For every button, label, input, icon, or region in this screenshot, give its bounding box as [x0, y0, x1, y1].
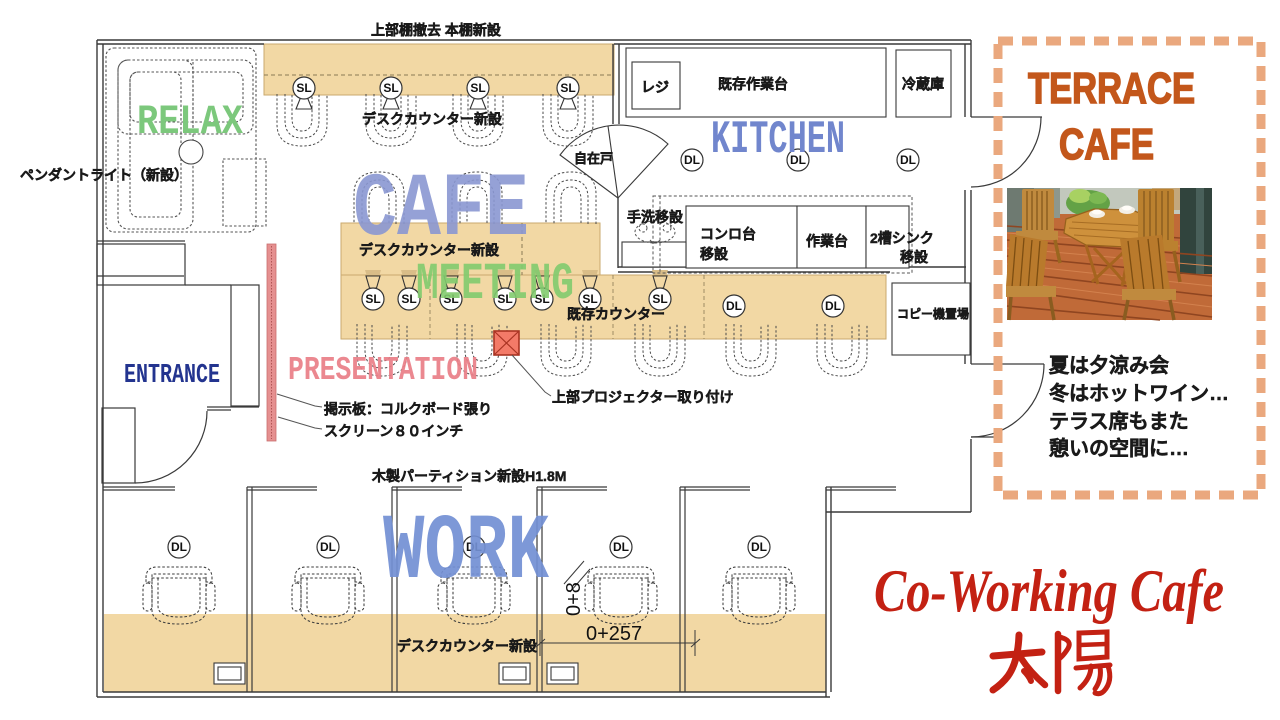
- svg-text:DL: DL: [726, 299, 742, 313]
- svg-text:デスクカウンター新設: デスクカウンター新設: [359, 242, 500, 258]
- svg-text:コンロ台: コンロ台: [700, 226, 756, 242]
- svg-text:自在戸: 自在戸: [574, 151, 613, 166]
- svg-text:PRESENTATION: PRESENTATION: [288, 352, 478, 389]
- svg-text:SL: SL: [470, 81, 485, 95]
- svg-text:KITCHEN: KITCHEN: [711, 114, 845, 166]
- svg-text:Co-Working Cafe: Co-Working Cafe: [874, 558, 1224, 624]
- svg-text:テラス席もまた: テラス席もまた: [1049, 409, 1189, 433]
- svg-text:木製パーティション新設H1.8M: 木製パーティション新設H1.8M: [371, 468, 566, 484]
- svg-text:SL: SL: [401, 292, 416, 306]
- svg-text:上部プロジェクター取り付け: 上部プロジェクター取り付け: [552, 389, 733, 405]
- svg-text:冬はホットワイン…: 冬はホットワイン…: [1049, 381, 1229, 405]
- svg-text:手洗移設: 手洗移設: [627, 209, 684, 225]
- svg-text:ペンダントライト（新設）: ペンダントライト（新設）: [20, 167, 188, 183]
- svg-text:掲示板：コルクボード張り: 掲示板：コルクボード張り: [324, 401, 492, 417]
- svg-text:DL: DL: [684, 153, 700, 167]
- svg-text:移設: 移設: [900, 249, 929, 265]
- svg-text:DL: DL: [751, 540, 767, 554]
- svg-text:移設: 移設: [700, 246, 729, 262]
- svg-text:DL: DL: [171, 540, 187, 554]
- svg-text:DL: DL: [613, 540, 629, 554]
- svg-text:SL: SL: [582, 292, 597, 306]
- svg-text:デスクカウンター新設: デスクカウンター新設: [362, 111, 503, 127]
- svg-text:SL: SL: [365, 292, 380, 306]
- svg-text:憩いの空間に…: 憩いの空間に…: [1049, 436, 1189, 460]
- svg-text:SL: SL: [560, 81, 575, 95]
- svg-text:スクリーン８０インチ: スクリーン８０インチ: [324, 423, 463, 439]
- svg-text:コピー機置場: コピー機置場: [897, 306, 969, 321]
- svg-text:MEETING: MEETING: [416, 255, 574, 314]
- svg-text:上部棚撤去 本棚新設: 上部棚撤去 本棚新設: [371, 22, 502, 38]
- svg-text:レジ: レジ: [641, 79, 669, 95]
- svg-text:SL: SL: [296, 81, 311, 95]
- svg-text:既存カウンター: 既存カウンター: [567, 306, 665, 322]
- svg-text:夏は夕涼み会: 夏は夕涼み会: [1049, 353, 1169, 377]
- svg-text:ENTRANCE: ENTRANCE: [124, 361, 220, 391]
- svg-text:WORK: WORK: [383, 500, 549, 605]
- svg-text:RELAX: RELAX: [137, 98, 244, 146]
- svg-text:0+8: 0+8: [563, 582, 585, 616]
- svg-text:既存作業台: 既存作業台: [718, 76, 788, 92]
- svg-text:SL: SL: [383, 81, 398, 95]
- svg-text:0+257: 0+257: [586, 623, 642, 645]
- svg-text:SL: SL: [652, 292, 667, 306]
- svg-text:2槽シンク: 2槽シンク: [870, 230, 934, 246]
- svg-text:DL: DL: [825, 299, 841, 313]
- svg-text:CAFE: CAFE: [1059, 120, 1154, 169]
- svg-text:デスクカウンター新設: デスクカウンター新設: [397, 638, 538, 654]
- svg-text:冷蔵庫: 冷蔵庫: [902, 76, 944, 92]
- svg-text:TERRACE: TERRACE: [1028, 64, 1195, 113]
- svg-text:DL: DL: [320, 540, 336, 554]
- svg-text:作業台: 作業台: [806, 233, 848, 249]
- svg-text:DL: DL: [900, 153, 916, 167]
